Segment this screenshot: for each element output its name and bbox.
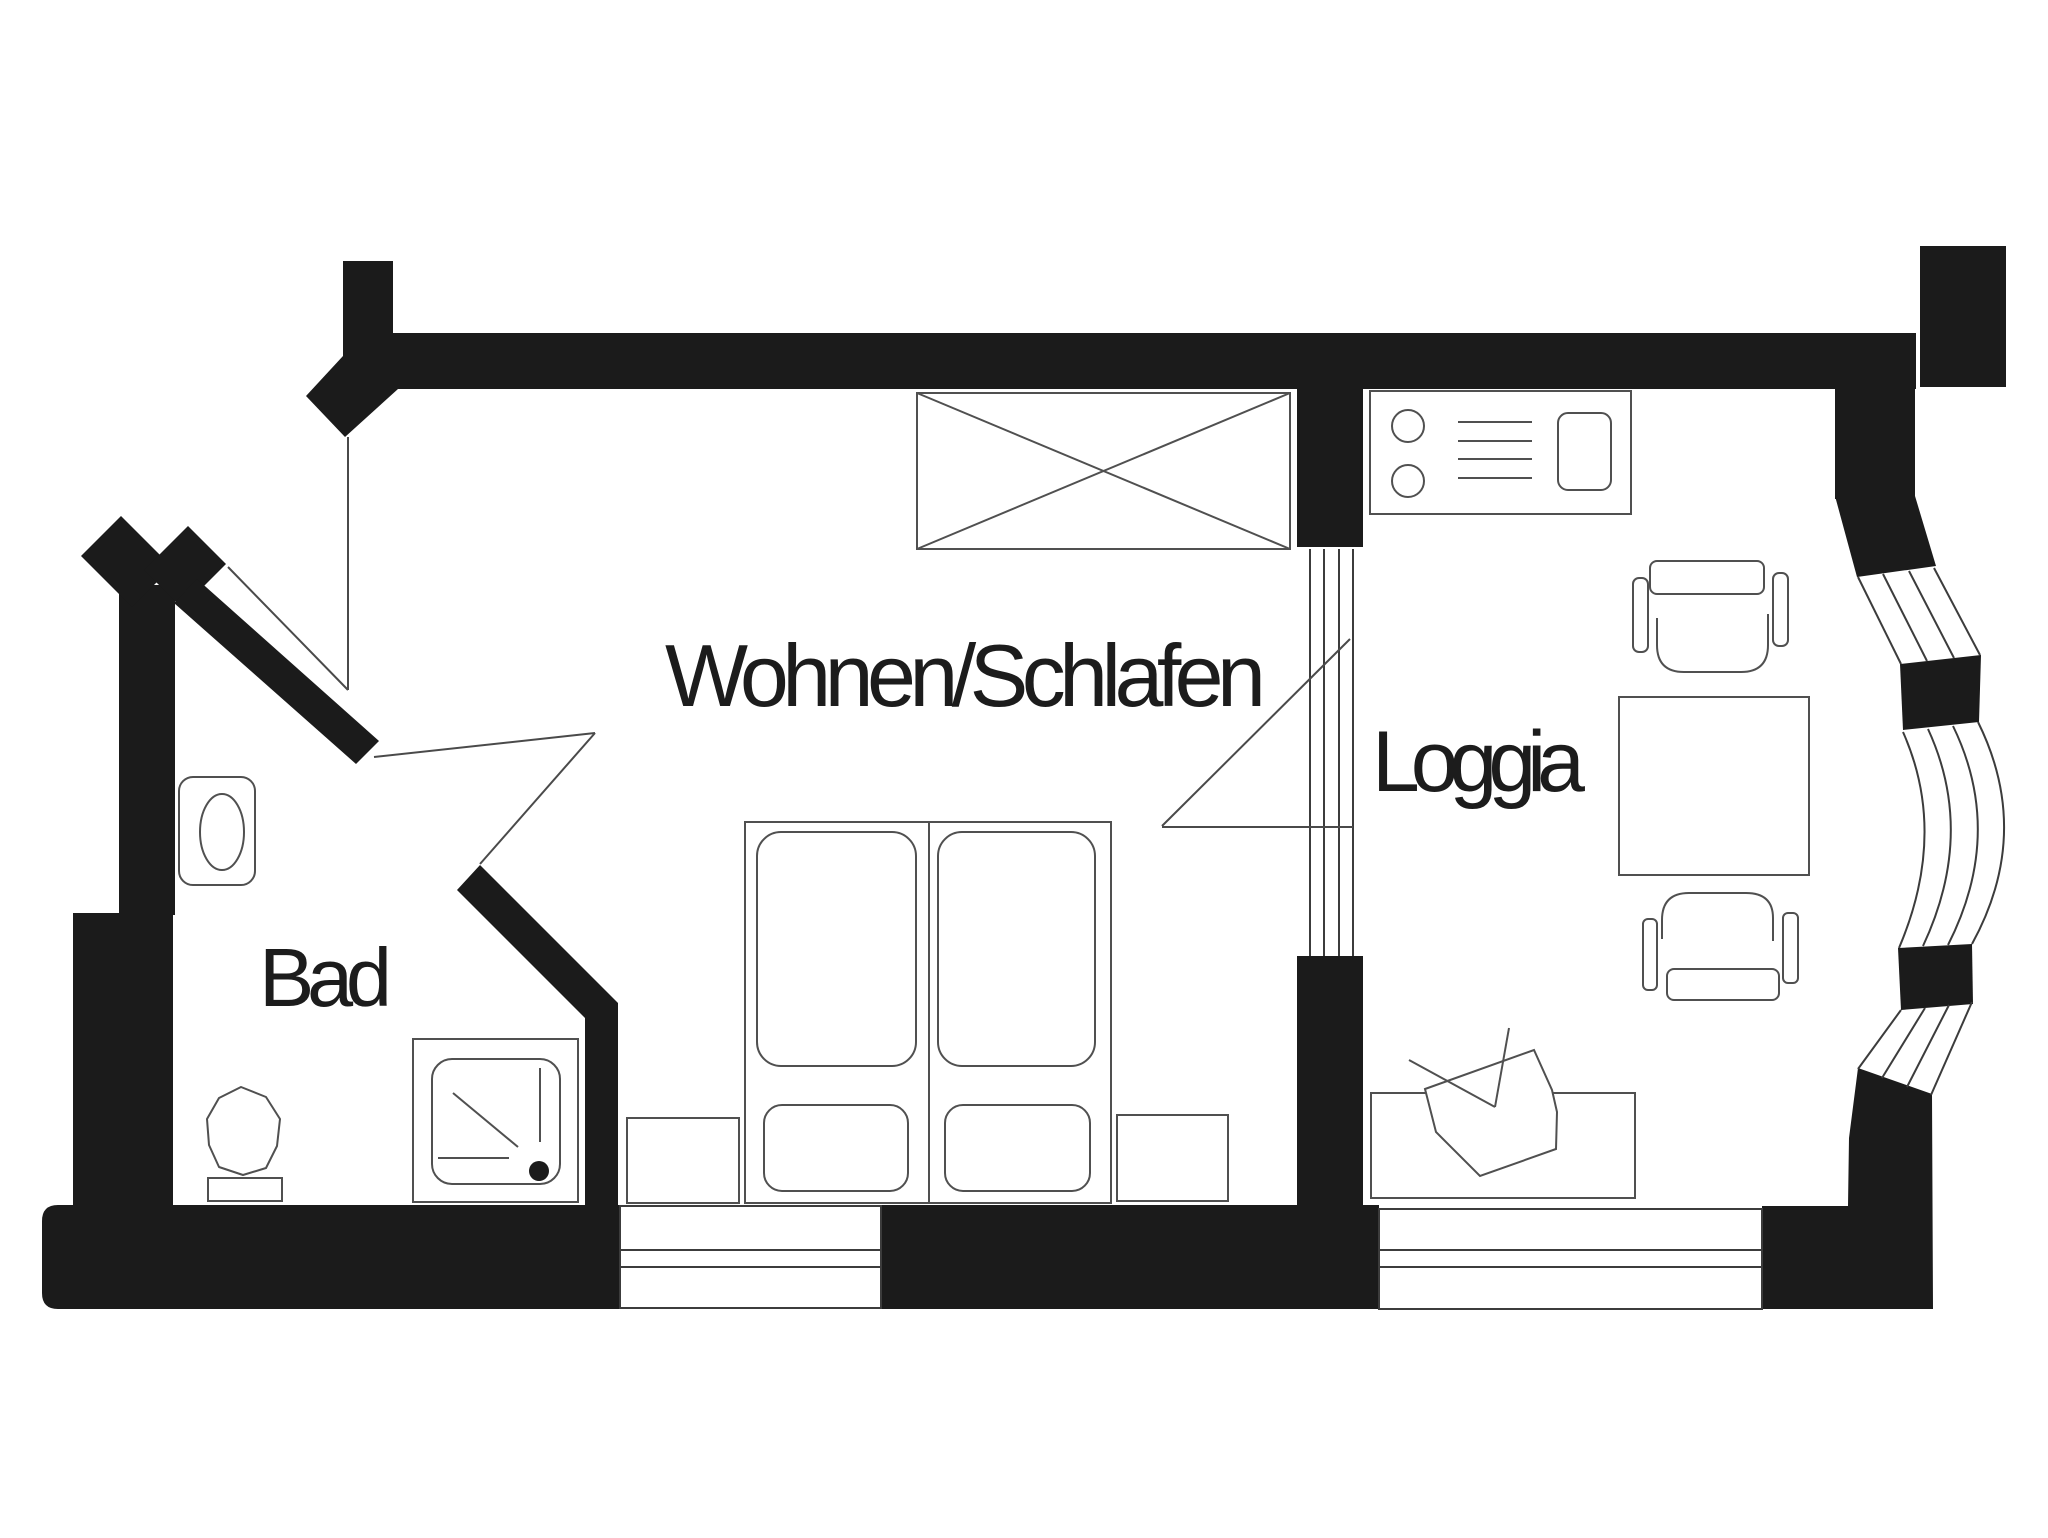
svg-text:Wohnen/Schlafen: Wohnen/Schlafen bbox=[665, 626, 1266, 725]
svg-text:Loggia: Loggia bbox=[1372, 714, 1585, 810]
svg-text:Bad: Bad bbox=[259, 931, 392, 1024]
